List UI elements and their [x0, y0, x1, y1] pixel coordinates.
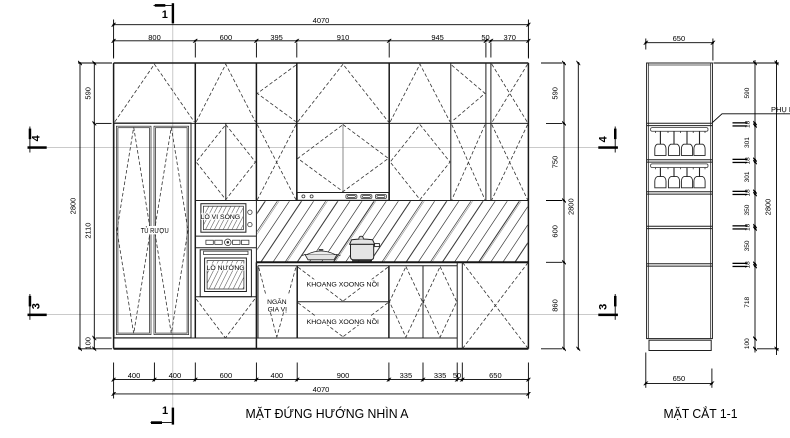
svg-text:650: 650 [673, 374, 686, 383]
svg-text:2800: 2800 [567, 198, 576, 215]
svg-text:50: 50 [453, 371, 461, 380]
svg-text:3: 3 [598, 304, 610, 310]
svg-text:1: 1 [162, 405, 168, 417]
svg-text:350: 350 [744, 204, 751, 215]
svg-text:4: 4 [30, 134, 42, 141]
svg-text:PHỤ KIỆN: PHỤ KIỆN [771, 105, 790, 114]
svg-text:3: 3 [30, 303, 42, 309]
svg-text:18: 18 [745, 189, 752, 197]
svg-text:650: 650 [673, 34, 686, 43]
svg-text:718: 718 [744, 296, 751, 307]
svg-text:18: 18 [745, 157, 752, 165]
svg-text:18: 18 [745, 223, 752, 231]
svg-text:301: 301 [744, 171, 751, 182]
svg-text:590: 590 [83, 87, 92, 100]
svg-text:4070: 4070 [313, 385, 330, 394]
svg-text:395: 395 [270, 33, 283, 42]
svg-text:2800: 2800 [69, 198, 78, 215]
svg-text:370: 370 [503, 33, 516, 42]
svg-text:MẶT ĐỨNG HƯỚNG NHÌN A: MẶT ĐỨNG HƯỚNG NHÌN A [246, 406, 410, 421]
svg-text:NGĂN: NGĂN [267, 297, 287, 306]
svg-text:590: 590 [744, 87, 751, 98]
svg-text:100: 100 [744, 338, 751, 349]
svg-text:910: 910 [337, 33, 350, 42]
svg-text:400: 400 [169, 371, 182, 380]
svg-text:335: 335 [434, 371, 447, 380]
svg-text:590: 590 [551, 87, 560, 100]
svg-text:18: 18 [745, 261, 752, 269]
svg-text:1: 1 [162, 9, 168, 21]
svg-text:800: 800 [148, 33, 161, 42]
svg-text:18: 18 [745, 120, 752, 128]
svg-text:MẶT CẮT 1-1: MẶT CẮT 1-1 [664, 406, 738, 421]
svg-text:750: 750 [551, 156, 560, 169]
svg-text:400: 400 [271, 371, 284, 380]
svg-text:100: 100 [83, 337, 92, 350]
svg-text:650: 650 [489, 371, 502, 380]
svg-text:TỦ RƯỢU: TỦ RƯỢU [141, 226, 169, 235]
svg-text:350: 350 [744, 240, 751, 251]
svg-text:GIA VỊ: GIA VỊ [268, 306, 288, 313]
svg-text:4070: 4070 [313, 16, 330, 25]
svg-text:335: 335 [400, 371, 413, 380]
svg-text:50: 50 [481, 33, 489, 42]
svg-text:LÒ VI SÓNG: LÒ VI SÓNG [201, 212, 241, 221]
svg-text:LÒ NƯỚNG: LÒ NƯỚNG [207, 263, 245, 272]
svg-text:600: 600 [220, 371, 233, 380]
svg-text:600: 600 [551, 225, 560, 238]
svg-text:945: 945 [431, 33, 444, 42]
svg-text:2110: 2110 [83, 223, 92, 239]
svg-text:600: 600 [220, 33, 233, 42]
svg-text:400: 400 [128, 371, 141, 380]
svg-text:301: 301 [744, 137, 751, 148]
svg-text:4: 4 [598, 135, 610, 142]
svg-text:2800: 2800 [763, 199, 772, 216]
svg-text:860: 860 [551, 299, 560, 312]
svg-text:900: 900 [337, 371, 350, 380]
